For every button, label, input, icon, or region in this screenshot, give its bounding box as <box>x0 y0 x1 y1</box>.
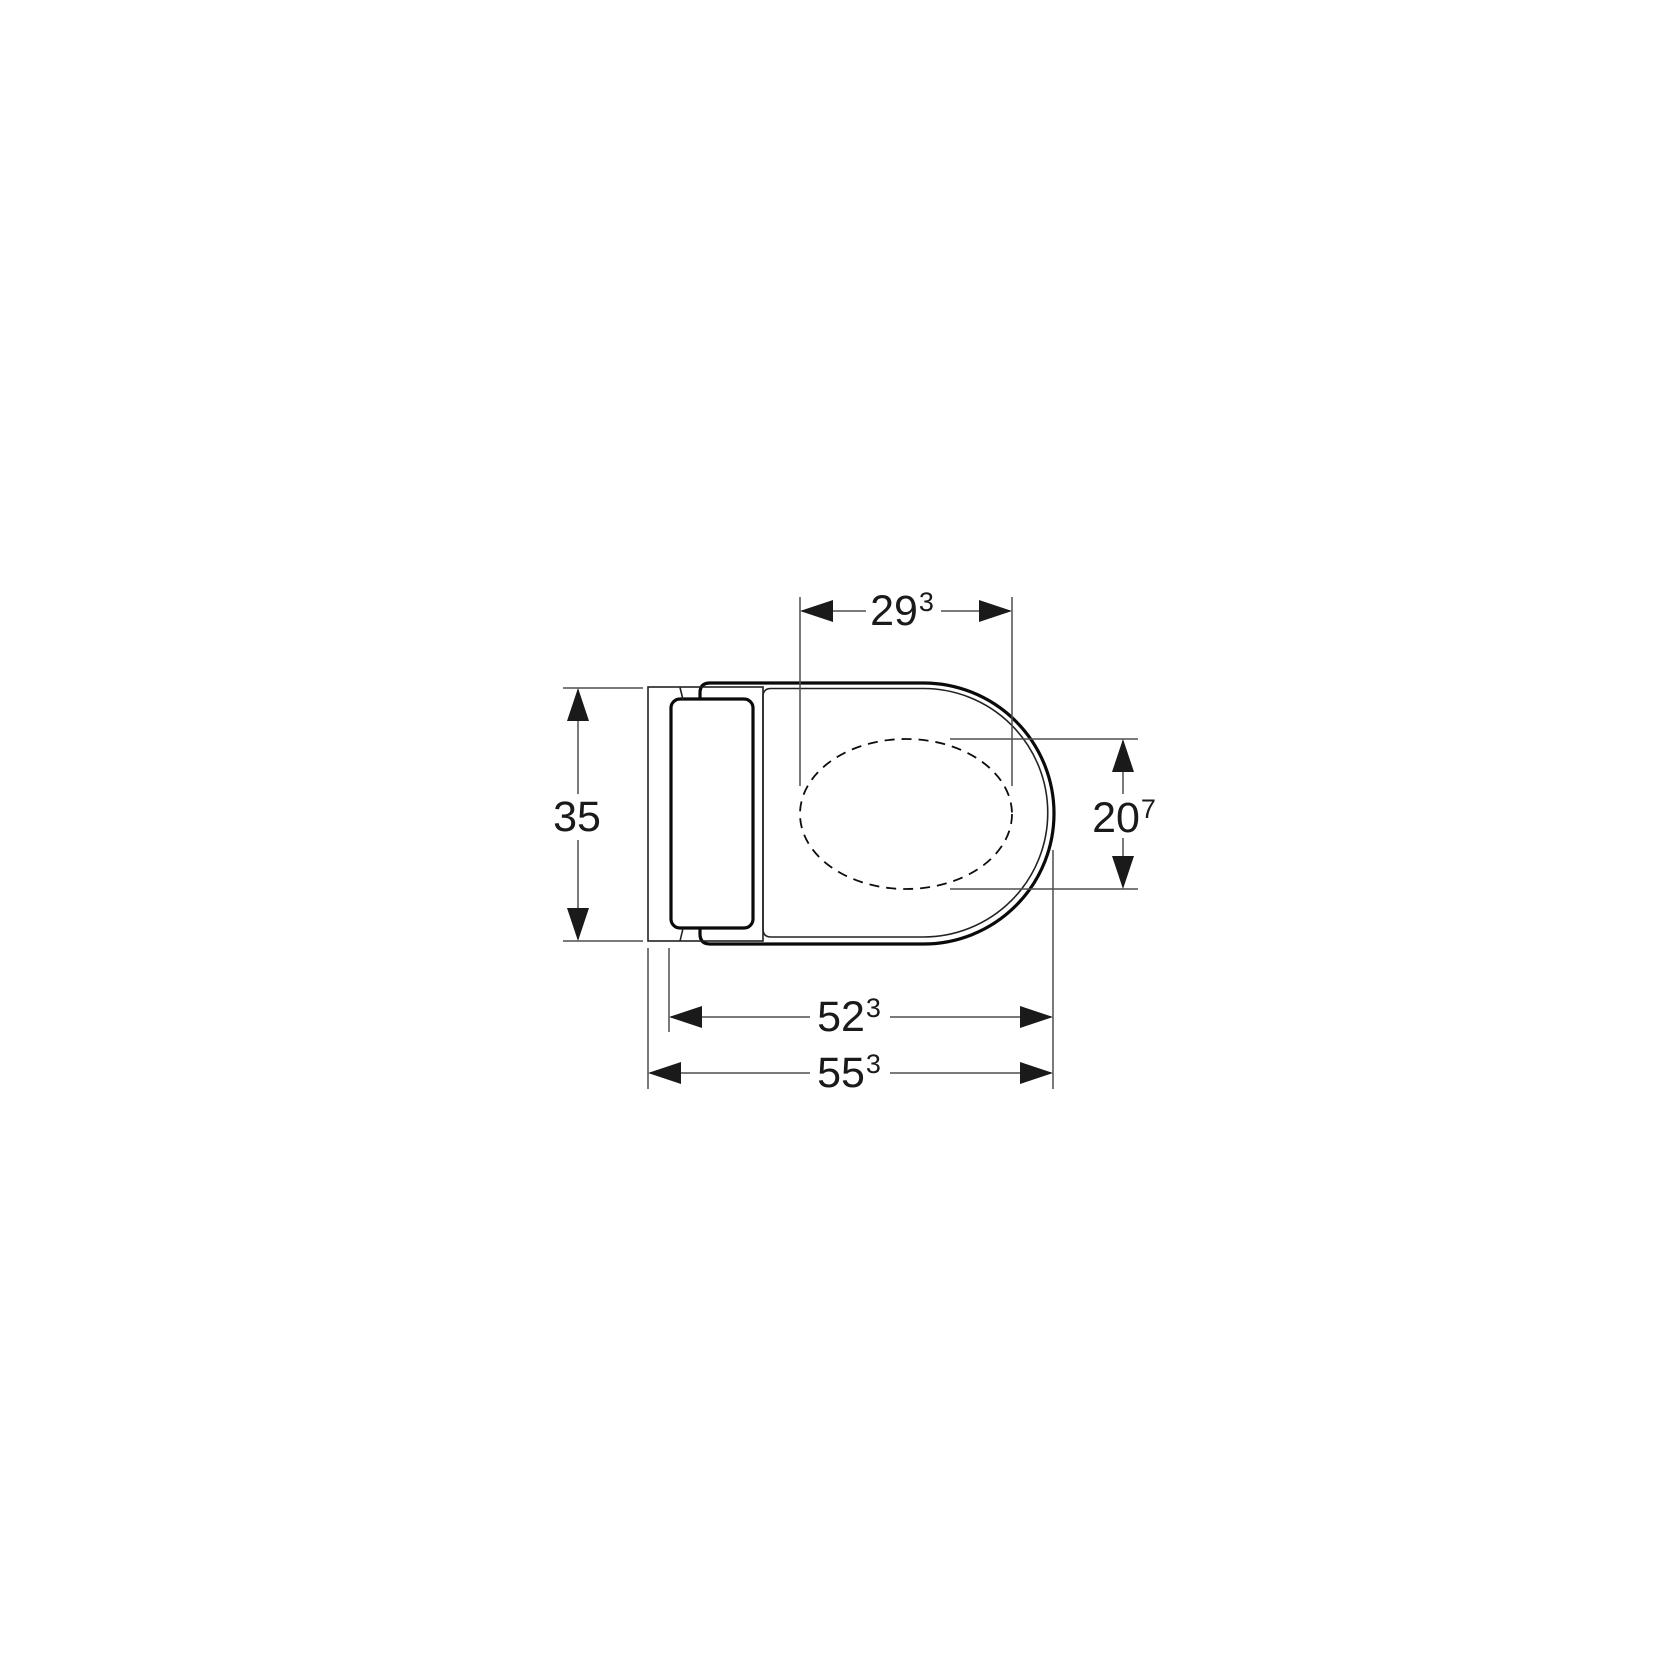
dimension-wall-width: 35 <box>553 688 643 941</box>
arrowhead-left-icon <box>669 1006 702 1028</box>
hinge-tab-bottom <box>680 929 683 942</box>
dim-value: 29 <box>870 587 918 635</box>
dim-superscript: 3 <box>919 587 934 617</box>
arrowhead-up-icon <box>1112 739 1134 772</box>
arrowhead-right-icon <box>1020 1062 1053 1084</box>
dim-value: 20 <box>1092 794 1140 842</box>
technical-drawing: 35 293 207 <box>0 0 1660 1660</box>
arrowhead-left-icon <box>800 600 833 622</box>
arrowhead-left-icon <box>648 1062 681 1084</box>
dim-label: 207 <box>1092 794 1156 842</box>
arrowhead-down-icon <box>1112 856 1134 889</box>
arrowhead-down-icon <box>567 908 589 941</box>
technical-drawing-page: 35 293 207 <box>0 0 1660 1660</box>
flush-plate <box>671 699 753 928</box>
dim-label: 553 <box>817 1049 881 1097</box>
dim-value: 52 <box>817 993 865 1041</box>
arrowhead-right-icon <box>979 600 1012 622</box>
dim-value: 35 <box>553 793 601 841</box>
arrowhead-up-icon <box>567 688 589 721</box>
dim-label: 293 <box>870 587 934 635</box>
dim-superscript: 3 <box>866 993 881 1023</box>
dim-label: 35 <box>553 793 601 841</box>
dim-value: 55 <box>817 1049 865 1097</box>
dim-superscript: 3 <box>866 1049 881 1079</box>
dim-superscript: 7 <box>1141 794 1156 824</box>
dim-label: 523 <box>817 993 881 1041</box>
arrowhead-right-icon <box>1020 1006 1053 1028</box>
product-outline <box>648 683 1054 944</box>
